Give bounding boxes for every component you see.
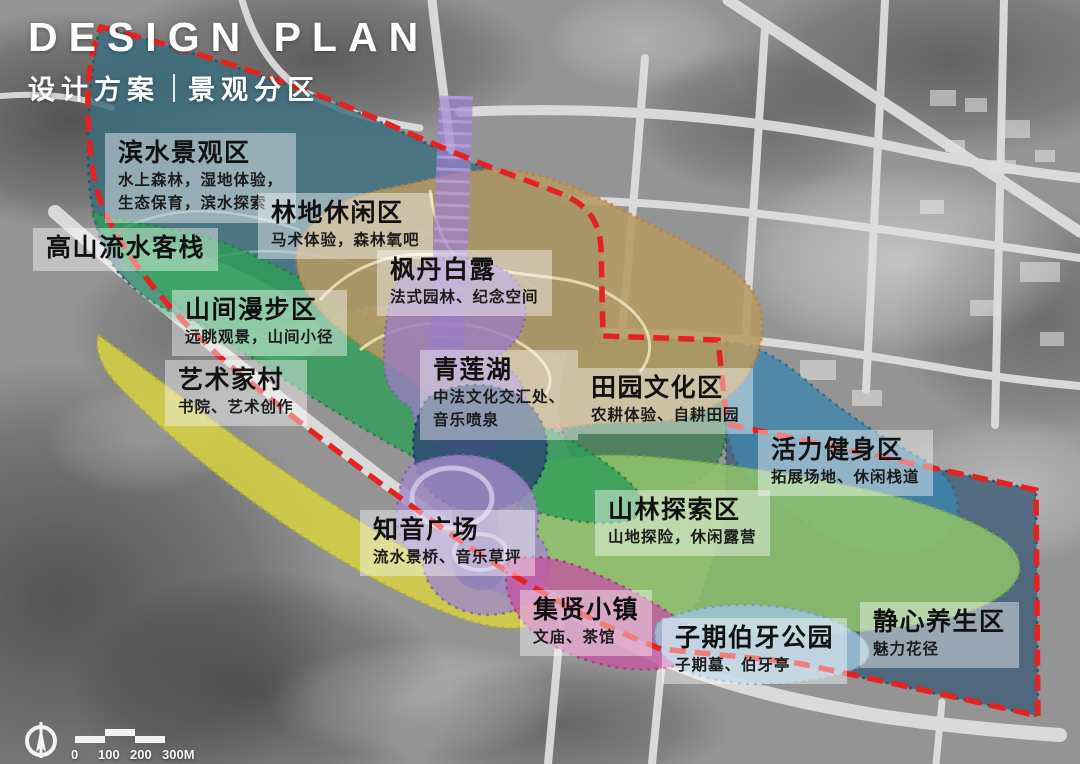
zone-title: 滨水景观区 (118, 140, 283, 167)
zone-label-shanlin: 山林探索区 山地探险，休闲露营 (595, 490, 770, 556)
subtitle-left: 设计方案 (28, 68, 160, 107)
zone-label-jixian: 集贤小镇 文庙、茶馆 (520, 590, 652, 656)
subtitle-divider (173, 74, 175, 102)
zone-title: 活力健身区 (771, 437, 920, 464)
zone-desc: 山地探险，休闲露营 (608, 528, 757, 547)
zone-title: 山林探索区 (608, 497, 757, 524)
zone-title: 田园文化区 (591, 375, 740, 402)
zone-label-zhiyin: 知音广场 流水景桥、音乐草坪 (360, 510, 535, 576)
zone-label-ziqi: 子期伯牙公园 子期墓、伯牙亭 (662, 618, 847, 684)
zone-desc: 水上森林，湿地体验， (118, 171, 283, 190)
zone-desc: 法式园林、纪念空间 (390, 288, 539, 307)
scale-label-100: 100 (98, 747, 120, 762)
zone-title: 青莲湖 (433, 357, 565, 384)
zone-title: 知音广场 (373, 517, 522, 544)
header: DESIGN PLAN 设计方案 景观分区 (28, 16, 429, 107)
scale-label-0: 0 (71, 747, 78, 762)
page-subtitle: 设计方案 景观分区 (28, 68, 429, 107)
zone-desc: 中法文化交汇处、 (433, 388, 565, 407)
zone-label-huoli: 活力健身区 拓展场地、休闲栈道 (758, 430, 933, 496)
zone-desc: 拓展场地、休闲栈道 (771, 468, 920, 487)
zone-label-qinglian: 青莲湖 中法文化交汇处、 音乐喷泉 (420, 350, 578, 440)
zone-title: 子期伯牙公园 (675, 625, 834, 652)
zone-desc: 书院、艺术创作 (178, 398, 294, 417)
zone-title: 静心养生区 (873, 609, 1006, 636)
zone-label-fengdan: 枫丹白露 法式园林、纪念空间 (377, 250, 552, 316)
zone-desc: 音乐喷泉 (433, 411, 565, 430)
zone-desc: 流水景桥、音乐草坪 (373, 548, 522, 567)
zone-desc: 农耕体验、自耕田园 (591, 406, 740, 425)
zone-title: 艺术家村 (178, 367, 294, 394)
zone-label-jingxin: 静心养生区 魅力花径 (860, 602, 1019, 668)
zone-title: 枫丹白露 (390, 257, 539, 284)
zone-desc: 马术体验，森林氧吧 (271, 231, 420, 250)
zone-title: 集贤小镇 (533, 597, 639, 624)
zone-desc: 子期墓、伯牙亭 (675, 656, 834, 675)
design-plan-poster: DESIGN PLAN 设计方案 景观分区 滨水景观区 水上森林，湿地体验， 生… (0, 0, 1080, 764)
zone-title: 林地休闲区 (271, 200, 420, 227)
zone-label-shanjian: 山间漫步区 远眺观景，山间小径 (172, 290, 347, 356)
zone-desc: 魅力花径 (873, 640, 1006, 659)
zone-label-tianyuan: 田园文化区 农耕体验、自耕田园 (578, 368, 753, 434)
subtitle-right: 景观分区 (188, 68, 320, 107)
page-title: DESIGN PLAN (28, 16, 429, 59)
zone-desc: 文庙、茶馆 (533, 628, 639, 647)
zone-title: 高山流水客栈 (46, 235, 205, 262)
zone-desc: 远眺观景，山间小径 (185, 328, 334, 347)
zone-label-yishu: 艺术家村 书院、艺术创作 (165, 360, 307, 426)
zone-title: 山间漫步区 (185, 297, 334, 324)
scale-label-300m: 300M (162, 747, 195, 762)
zone-label-gaoshan: 高山流水客栈 (33, 228, 218, 271)
scale-label-200: 200 (130, 747, 152, 762)
